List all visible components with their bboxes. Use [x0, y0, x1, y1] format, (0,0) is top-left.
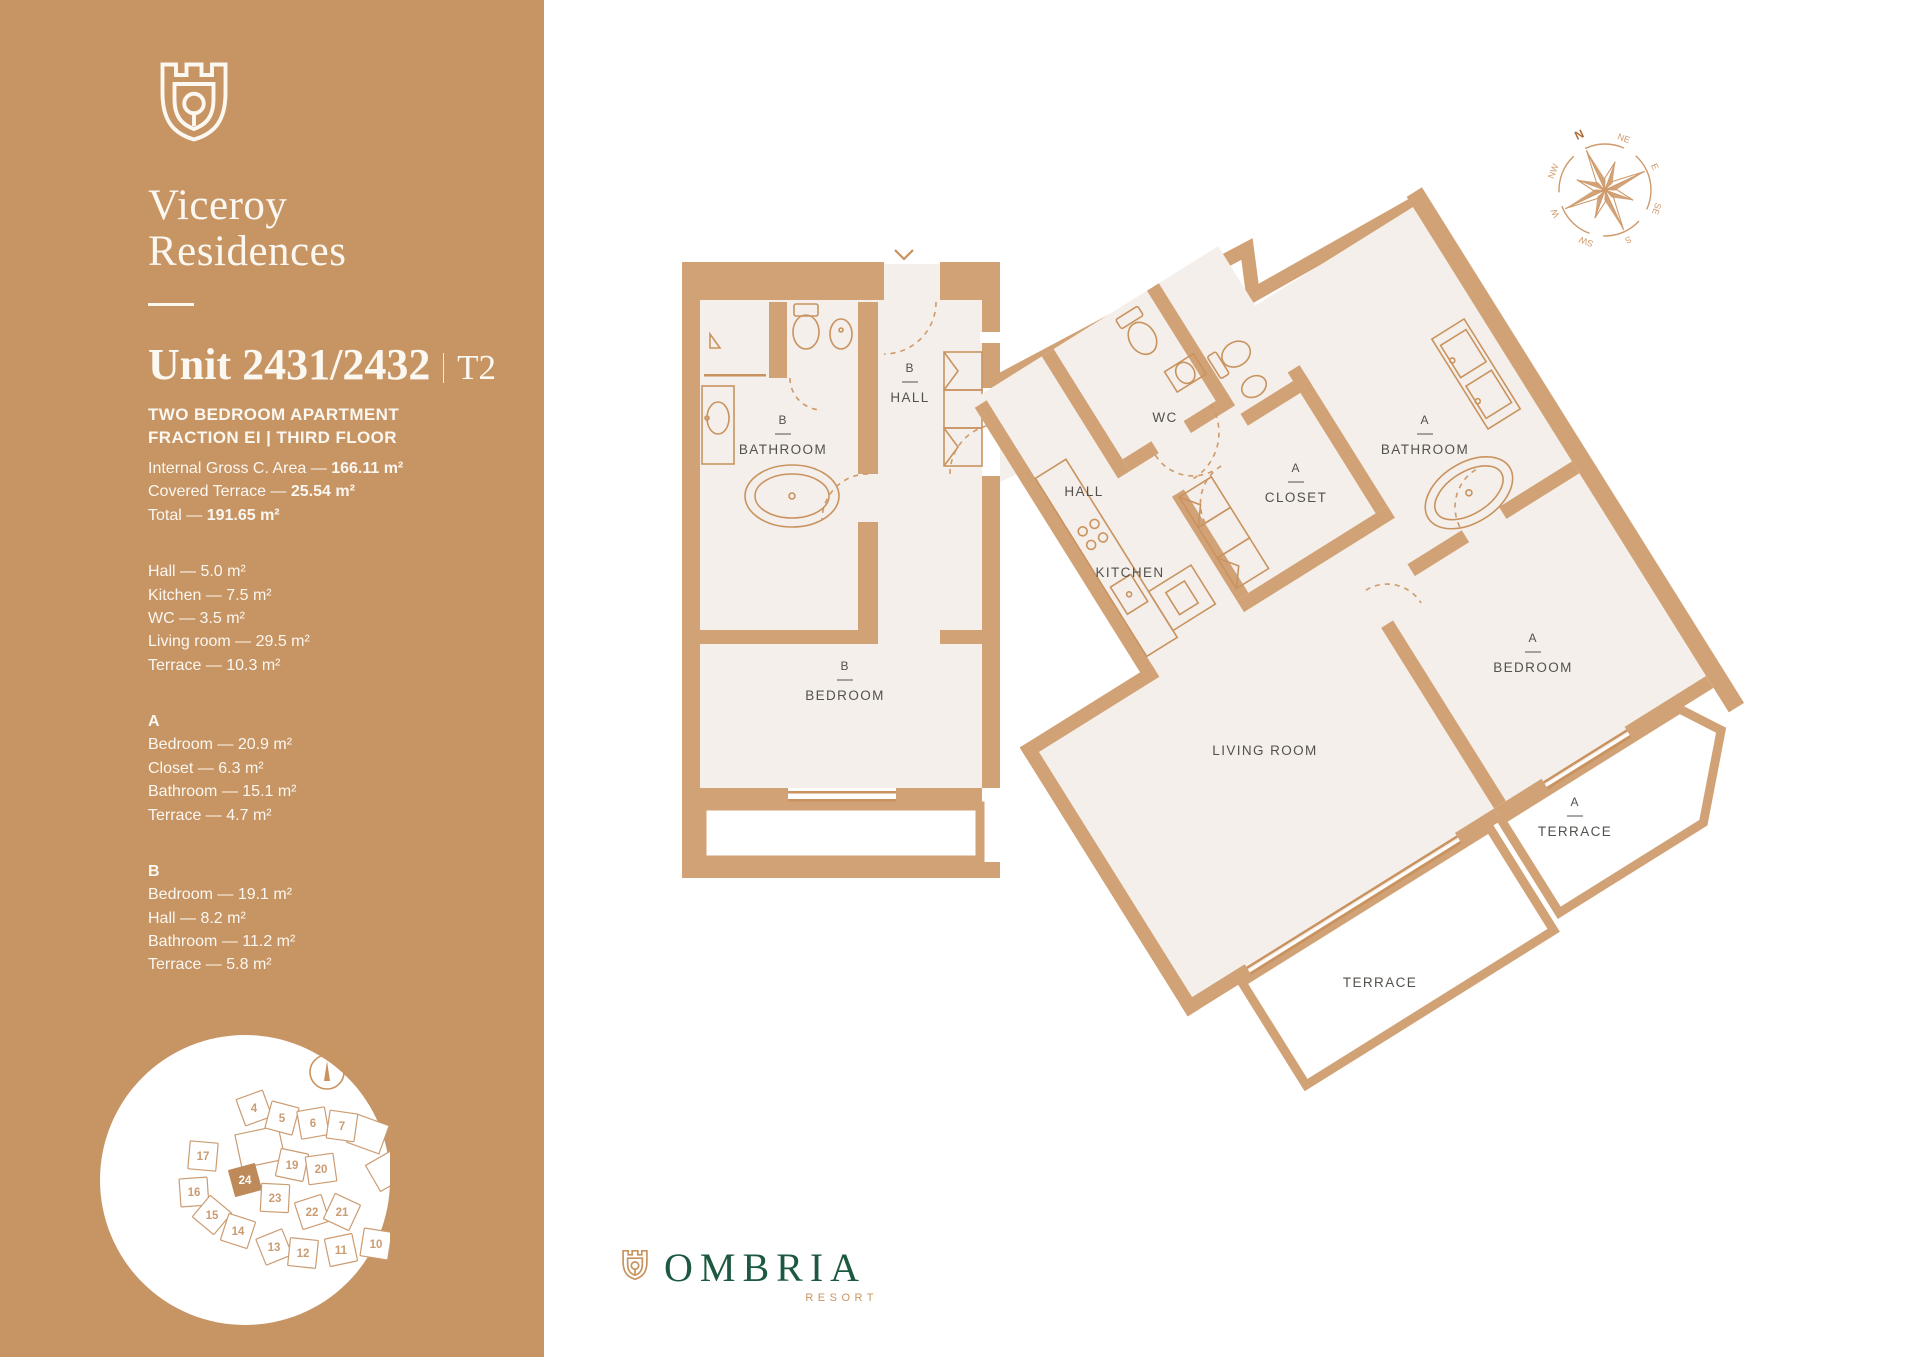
resort-wordmark: RESORT [796, 1292, 878, 1304]
window-slit [980, 332, 1002, 343]
svg-text:BEDROOM: BEDROOM [1493, 660, 1573, 675]
svg-text:A: A [1528, 631, 1537, 645]
svg-text:BEDROOM: BEDROOM [805, 688, 885, 703]
svg-text:BATHROOM: BATHROOM [1381, 442, 1469, 457]
svg-text:HALL: HALL [1064, 484, 1103, 499]
ombria-wordmark: OMBRIA [664, 1248, 866, 1288]
ombria-resort-logo: OMBRIA RESORT [618, 1248, 878, 1318]
svg-text:TERRACE: TERRACE [1343, 975, 1417, 990]
compass-rose: NNEESESSWWNW [1522, 103, 1685, 270]
svg-text:BATHROOM: BATHROOM [739, 442, 827, 457]
svg-text:LIVING ROOM: LIVING ROOM [1212, 743, 1317, 758]
floor-plan: NNEESESSWWNW BBATHROOM BHALL BBEDROOM WC… [0, 0, 1920, 1357]
compass-label-N: N [1572, 127, 1586, 143]
compass-label-E: E [1649, 162, 1661, 172]
svg-text:B: B [778, 413, 787, 427]
ombria-castle-icon [618, 1248, 652, 1282]
terrace-b-floor [702, 806, 980, 860]
svg-text:KITCHEN: KITCHEN [1095, 565, 1164, 580]
svg-text:A: A [1291, 461, 1300, 475]
svg-text:HALL: HALL [890, 390, 929, 405]
svg-text:WC: WC [1152, 410, 1177, 425]
svg-text:A: A [1570, 795, 1579, 809]
unit-b-plan [682, 250, 1002, 878]
svg-text:B: B [905, 361, 914, 375]
compass-label-SE: SE [1650, 201, 1664, 216]
svg-text:CLOSET: CLOSET [1265, 490, 1327, 505]
svg-text:B: B [840, 659, 849, 673]
svg-text:TERRACE: TERRACE [1538, 824, 1612, 839]
compass-label-NE: NE [1616, 131, 1631, 145]
compass-label-S: S [1623, 234, 1633, 246]
entry-chevron-b [895, 250, 913, 259]
compass-label-SW: SW [1577, 234, 1595, 249]
svg-text:A: A [1420, 413, 1429, 427]
compass-label-W: W [1549, 207, 1562, 219]
compass-label-NW: NW [1546, 162, 1561, 180]
